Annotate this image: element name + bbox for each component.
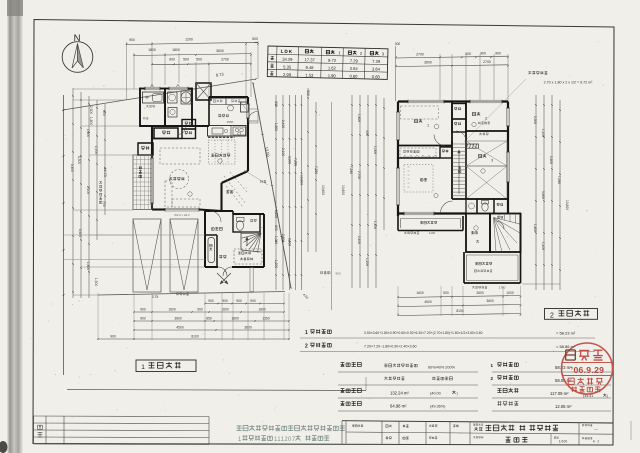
svg-text:3600: 3600 <box>174 317 182 321</box>
svg-text:1350: 1350 <box>262 317 270 321</box>
svg-text:·: · <box>52 418 53 422</box>
svg-text:500: 500 <box>443 291 449 295</box>
svg-text:2,300: 2,300 <box>89 106 93 115</box>
svg-text:2700: 2700 <box>416 53 424 57</box>
svg-text:·: · <box>52 432 53 436</box>
svg-text:1,200: 1,200 <box>365 258 369 266</box>
svg-text:2,100: 2,100 <box>281 148 285 156</box>
svg-text:2,400: 2,400 <box>281 120 285 128</box>
svg-text:1,200: 1,200 <box>274 260 278 268</box>
svg-text:2: 2 <box>550 312 554 319</box>
svg-text:900: 900 <box>208 299 214 303</box>
svg-text:·: · <box>58 418 59 422</box>
svg-text:500: 500 <box>196 57 202 61</box>
svg-text:1600: 1600 <box>168 308 176 312</box>
svg-text:(40.00: (40.00 <box>430 392 441 396</box>
svg-text:·: · <box>58 425 59 429</box>
svg-text:3.64: 3.64 <box>372 66 381 71</box>
svg-text:1,100: 1,100 <box>541 129 545 137</box>
svg-text:·: · <box>52 439 53 443</box>
svg-text:1,800: 1,800 <box>357 114 361 122</box>
svg-text:1000: 1000 <box>506 291 514 295</box>
svg-text:2,100: 2,100 <box>86 186 90 195</box>
svg-text:7,280: 7,280 <box>349 166 353 174</box>
svg-text:1,800: 1,800 <box>274 123 278 131</box>
svg-text:600: 600 <box>274 101 278 107</box>
svg-text:2550: 2550 <box>227 120 234 124</box>
svg-text:3,600: 3,600 <box>288 238 292 246</box>
svg-text:8100: 8100 <box>191 335 199 339</box>
svg-text:0.50×3.60+1.80×0.90+0.60×0.92+: 0.50×3.60+1.80×0.90+0.60×0.92+6.30×7.20+… <box>364 331 483 335</box>
svg-text:2,500: 2,500 <box>533 116 537 124</box>
svg-text:3,600: 3,600 <box>78 229 82 238</box>
svg-text:0.60: 0.60 <box>372 74 381 79</box>
svg-text:900: 900 <box>169 57 175 61</box>
svg-text:8100: 8100 <box>456 309 464 313</box>
svg-text:900: 900 <box>495 51 501 55</box>
svg-text:900: 900 <box>129 38 135 42</box>
svg-text:132.24 m²: 132.24 m² <box>390 391 409 396</box>
svg-text:3,000: 3,000 <box>288 156 292 164</box>
svg-text:—: — <box>594 427 598 432</box>
svg-text:1: 1 <box>141 364 145 371</box>
svg-text:2: 2 <box>305 344 308 350</box>
svg-text:1: 1 <box>427 124 429 128</box>
svg-text:1,000: 1,000 <box>274 236 278 244</box>
svg-text:900: 900 <box>480 52 486 56</box>
svg-text:17.37: 17.37 <box>305 57 316 62</box>
svg-text:500: 500 <box>183 57 189 61</box>
svg-text:60%/40% 200%: 60%/40% 200% <box>428 366 456 370</box>
svg-text:900: 900 <box>197 308 203 312</box>
svg-text:111207: 111207 <box>274 437 296 443</box>
svg-text:900: 900 <box>140 317 146 321</box>
svg-text:34.29: 34.29 <box>282 57 293 62</box>
svg-text:900: 900 <box>140 308 146 312</box>
svg-text:800: 800 <box>274 225 278 231</box>
svg-text:1600: 1600 <box>416 291 424 295</box>
svg-text:10,800: 10,800 <box>321 185 325 195</box>
svg-text:·: · <box>58 432 59 436</box>
svg-text:): ) <box>607 394 608 398</box>
svg-text:·: · <box>58 439 59 443</box>
svg-text:1.90: 1.90 <box>328 73 337 78</box>
svg-text:500: 500 <box>252 37 258 41</box>
svg-text:900: 900 <box>250 299 256 303</box>
svg-text:1,200: 1,200 <box>274 210 278 218</box>
svg-text:900: 900 <box>236 299 242 303</box>
svg-text:1700: 1700 <box>499 286 506 290</box>
svg-text:1,800: 1,800 <box>86 129 90 138</box>
svg-text:A - 2: A - 2 <box>593 440 600 444</box>
svg-text:2700: 2700 <box>483 60 491 64</box>
svg-text:1800: 1800 <box>231 317 239 321</box>
svg-text:1.53: 1.53 <box>305 73 314 78</box>
svg-text:5,400: 5,400 <box>70 164 74 173</box>
svg-text:1200: 1200 <box>185 37 193 41</box>
svg-text:10,800: 10,800 <box>300 175 304 185</box>
svg-text:10,800: 10,800 <box>565 200 569 210</box>
svg-text:1/100: 1/100 <box>559 440 568 444</box>
svg-text:7,280: 7,280 <box>557 176 561 184</box>
svg-text:5,300: 5,300 <box>77 156 81 165</box>
svg-text:LDK: LDK <box>281 49 294 54</box>
svg-text:N: N <box>74 33 81 44</box>
svg-text:1,500: 1,500 <box>94 278 98 287</box>
svg-text:4500: 4500 <box>424 300 432 304</box>
svg-text:1,800: 1,800 <box>89 117 93 126</box>
svg-text:5.35: 5.35 <box>283 64 292 69</box>
svg-text:1800: 1800 <box>172 48 180 52</box>
svg-text:1,400: 1,400 <box>541 242 545 250</box>
svg-text:1100: 1100 <box>429 231 436 235</box>
svg-text:10,800: 10,800 <box>341 185 345 195</box>
svg-text:1,100: 1,100 <box>373 221 377 229</box>
svg-text:·: · <box>52 425 53 429</box>
svg-text:1,000: 1,000 <box>373 146 377 154</box>
svg-text:2,400: 2,400 <box>357 236 361 244</box>
svg-text:450: 450 <box>365 130 369 136</box>
svg-text:300: 300 <box>395 42 401 46</box>
svg-text:700: 700 <box>102 201 106 207</box>
svg-text:64.98 m²: 64.98 m² <box>390 404 407 409</box>
svg-text:900: 900 <box>222 299 228 303</box>
svg-text:7.29: 7.29 <box>372 59 381 64</box>
svg-text:850: 850 <box>206 317 212 321</box>
svg-text:2600: 2600 <box>476 291 484 295</box>
svg-text:3.64: 3.64 <box>350 66 359 71</box>
svg-text:1800: 1800 <box>258 308 266 312</box>
svg-text:1600: 1600 <box>221 308 229 312</box>
svg-text:’06.9.29: ’06.9.29 <box>571 365 604 375</box>
svg-text:7.20×7.20−1.80×0.90+2.40×3.60: 7.20×7.20−1.80×0.90+2.40×3.60 <box>364 345 416 349</box>
svg-text:500: 500 <box>306 90 310 96</box>
svg-text:900: 900 <box>110 335 116 339</box>
svg-text:3600: 3600 <box>486 299 494 303</box>
svg-text:2.70 x 1.80 x 2 x 1/2 = 9.72 m: 2.70 x 1.80 x 2 x 1/2 = 9.72 m² <box>544 81 593 85</box>
svg-text:58.23 m²: 58.23 m² <box>555 365 572 370</box>
svg-text:3600: 3600 <box>424 61 432 65</box>
svg-text:3.75: 3.75 <box>152 295 159 299</box>
svg-text:· ·: · · <box>361 428 364 432</box>
svg-text:9.72: 9.72 <box>328 58 337 63</box>
svg-text:2.99: 2.99 <box>283 72 292 77</box>
svg-text:1,000: 1,000 <box>94 146 98 155</box>
svg-text:117.09 m²: 117.09 m² <box>550 391 569 396</box>
svg-text:7,280: 7,280 <box>314 166 318 174</box>
svg-text:12.06 m²: 12.06 m² <box>555 404 572 409</box>
svg-text:2: 2 <box>485 117 487 121</box>
svg-text:1,800: 1,800 <box>86 262 90 271</box>
svg-text:1.62: 1.62 <box>328 65 337 70</box>
svg-text:(49.36%): (49.36%) <box>430 405 446 409</box>
svg-text:4500: 4500 <box>176 326 184 330</box>
svg-text:7.29: 7.29 <box>350 58 359 63</box>
svg-text:2,600: 2,600 <box>549 156 553 164</box>
svg-text:2,600: 2,600 <box>281 234 285 242</box>
svg-text:2700: 2700 <box>221 57 229 61</box>
svg-text:1,800: 1,800 <box>533 224 537 232</box>
svg-text:1: 1 <box>305 330 308 336</box>
svg-text:3600: 3600 <box>216 49 224 53</box>
svg-text:3,600: 3,600 <box>541 191 545 199</box>
svg-text:2,700: 2,700 <box>357 171 361 179</box>
svg-text:W2.0 x H2.2: W2.0 x H2.2 <box>174 213 190 217</box>
svg-text:= 58.23 m²: = 58.23 m² <box>556 331 576 336</box>
svg-text:600: 600 <box>102 110 106 116</box>
svg-text:3: 3 <box>491 159 493 163</box>
svg-text:0.60: 0.60 <box>349 74 358 79</box>
svg-text:9.48: 9.48 <box>305 65 314 70</box>
svg-text:900: 900 <box>335 272 340 276</box>
